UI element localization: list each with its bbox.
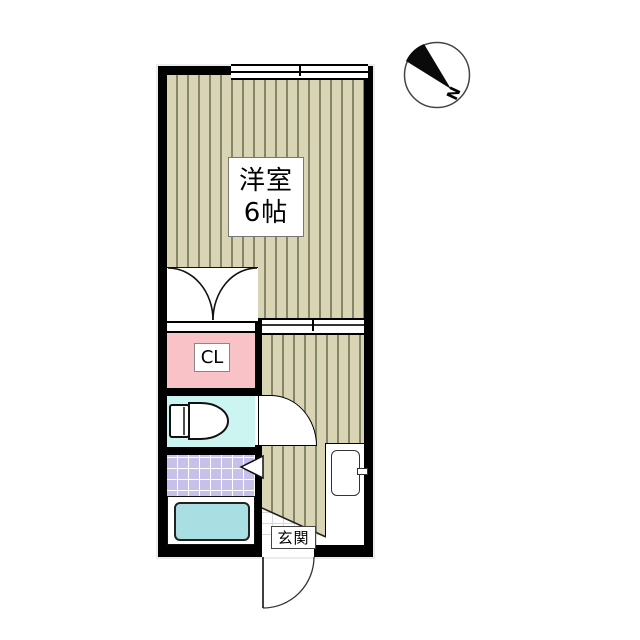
toilet-icon bbox=[167, 399, 231, 443]
main-room-name: 洋室 bbox=[239, 165, 293, 198]
cabinet-icon bbox=[331, 450, 360, 496]
window-center-tick bbox=[299, 64, 301, 76]
bath-door-icon bbox=[238, 454, 264, 480]
wall-closet-right bbox=[255, 318, 262, 396]
floor-plan-canvas: 洋室 6帖 CL 玄関 N bbox=[0, 0, 640, 640]
main-room-size: 6帖 bbox=[244, 197, 289, 230]
wall-closet-toilet bbox=[158, 388, 262, 396]
compass-north-label: N bbox=[442, 84, 464, 103]
partition-center-tick bbox=[312, 318, 314, 331]
closet-label: CL bbox=[194, 343, 230, 372]
entrance-label: 玄関 bbox=[271, 526, 316, 549]
entrance-cabinet-area bbox=[325, 443, 364, 545]
closet-door-arcs-icon bbox=[167, 268, 258, 321]
cabinet-handle-icon bbox=[357, 468, 368, 475]
bathtub bbox=[167, 496, 255, 545]
closet-doors-swing bbox=[167, 267, 258, 323]
compass-icon: N bbox=[402, 40, 472, 110]
bathtub-basin bbox=[174, 502, 250, 541]
main-room-label: 洋室 6帖 bbox=[228, 157, 304, 237]
entrance-door-swing bbox=[258, 550, 320, 618]
